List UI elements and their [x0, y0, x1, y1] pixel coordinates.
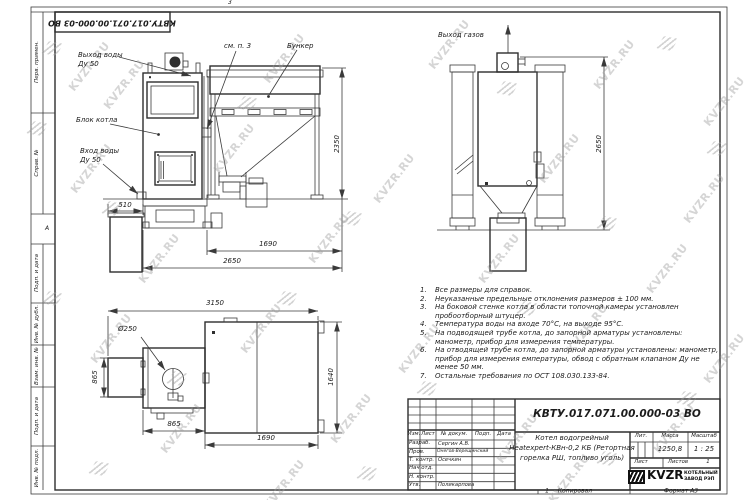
dimension-lines: [100, 57, 608, 449]
note-text: Неуказанные предельные отклонения размер…: [435, 295, 720, 304]
note-number: 3.: [420, 303, 435, 320]
note-text: Все размеры для справок.: [435, 286, 720, 295]
note-text: На боковой стенке котла в области топочн…: [435, 303, 720, 320]
title-designation: КВТУ.017.071.00.000-03 ВО: [533, 409, 701, 421]
note-item: 3.На боковой стенке котла в области топо…: [420, 303, 720, 320]
col-header-doc: № докум.: [441, 432, 468, 438]
note-number: 1.: [420, 286, 435, 295]
note-item: 4.Температура воды на входе 70°С, на вых…: [420, 320, 720, 329]
role-nachotd: Нач.отд.: [409, 466, 433, 472]
callout-gas-out: Выход газов: [438, 32, 484, 40]
sheets-label: Листов: [668, 460, 688, 466]
scale-value: 1 : 25: [694, 446, 714, 454]
dim-2350: 2350: [334, 135, 342, 153]
technical-notes: 1.Все размеры для справок. 2.Неуказанные…: [420, 286, 720, 381]
note-number: 5.: [420, 329, 435, 346]
company-line1: КОТЕЛЬНЫЙ: [684, 471, 718, 476]
callout-water-out-line1: Выход воды: [78, 52, 123, 60]
callout-bunker: Бункер: [287, 43, 314, 51]
kvzr-logo-icon: [628, 470, 645, 484]
zone-digit: 3: [228, 0, 232, 7]
zone-letter: А: [45, 226, 49, 233]
top-view: [108, 318, 324, 433]
note-number: 7.: [420, 372, 435, 381]
frame-label-inv-podl: Инв. № подл.: [34, 449, 40, 488]
note-text: Температура воды на входе 70°С, на выход…: [435, 320, 720, 329]
role-razrab: Разраб.: [409, 441, 430, 447]
col-header-data: Дата: [497, 432, 511, 438]
note-item: 5.На подводящей трубе котла, до запорной…: [420, 329, 720, 346]
footer-format: Формат А3: [664, 489, 698, 496]
dim-1690-top: 1690: [257, 435, 275, 443]
title-name-line3: горелка РШ, топливо уголь): [520, 455, 624, 463]
note-text: Остальные требования по ОСТ 108.030.133-…: [435, 372, 720, 381]
col-header-podp: Подп.: [475, 432, 491, 438]
drawing-sheet: КВТУ.017.071.00.000-03 ВО 3 А Перв. прим…: [0, 0, 750, 500]
dim-865-bottom: 865: [167, 421, 180, 429]
note-text: На отводящей трубе котла, до запорной ар…: [435, 346, 720, 372]
dim-2650-side: 2650: [596, 135, 604, 153]
note-item: 7.Остальные требования по ОСТ 108.030.13…: [420, 372, 720, 381]
dim-1690-front: 1690: [259, 241, 277, 249]
footer-copy: Копировал: [558, 489, 592, 496]
name-utv: Поликарпова: [438, 483, 474, 489]
footer-num: 1: [545, 489, 549, 496]
note-number: 6.: [420, 346, 435, 372]
role-utv: Утв.: [409, 483, 420, 489]
role-tkontr: Т. контр.: [409, 458, 434, 464]
name-tkontr: Осечкин: [438, 458, 461, 464]
sheet-label: Лист: [634, 460, 648, 466]
callout-water-in-line1: Вход воды: [80, 148, 119, 156]
dim-510: 510: [118, 202, 131, 210]
role-nkontr: Н. контр.: [409, 475, 435, 481]
company-line2: ЗАВОД РЭП: [684, 477, 715, 482]
frame-label-sprav-no: Справ. №: [34, 149, 40, 176]
frame-label-perv-primen: Перв. примен.: [34, 41, 40, 83]
scale-label: Масштаб: [691, 434, 717, 440]
callout-water-out-line2: Ду 50: [78, 61, 99, 69]
note-text: На подводящей трубе котла, до запорной а…: [435, 329, 720, 346]
dim-1640: 1640: [328, 368, 336, 386]
dim-d250: Ø250: [118, 326, 137, 334]
dim-3150: 3150: [206, 300, 224, 308]
note-item: 1.Все размеры для справок.: [420, 286, 720, 295]
side-view: [437, 25, 610, 271]
designation-top-rotated: КВТУ.017.071.00.000-03 ВО: [48, 18, 176, 27]
callout-water-in-line2: Ду 50: [80, 157, 101, 165]
name-razrab: Сергин А.В.: [438, 442, 470, 448]
note-item: 2.Неуказанные предельные отклонения разм…: [420, 295, 720, 304]
frame-label-vzam-inv: Взам. инв. №: [34, 347, 40, 385]
title-name-line2: Heatexpert-КВн-0,2 КБ (Ретортная: [509, 445, 634, 453]
sheets-value: 1: [706, 460, 709, 466]
role-prov: Пров.: [409, 450, 425, 456]
name-prov: Онегов-Верещинский: [437, 450, 488, 455]
note-number: 4.: [420, 320, 435, 329]
mass-label: Масса: [661, 434, 678, 440]
drawing-linework: [0, 0, 750, 500]
col-header-izm: Изм.: [408, 432, 421, 438]
dim-865-left: 865: [92, 370, 100, 383]
callout-see-note-3: см. п. 3: [224, 43, 251, 51]
dim-2650-front: 2650: [223, 258, 241, 266]
frame-label-podp-data-1: Подп. и дата: [34, 254, 40, 292]
mass-value: 1250,8: [658, 446, 683, 454]
note-number: 2.: [420, 295, 435, 304]
title-name-line1: Котел водогрейный: [535, 435, 609, 443]
lit-label: Лит.: [635, 434, 647, 440]
frame-label-inv-dubl: Инв. № дубл.: [34, 305, 40, 343]
col-header-list: Лист: [421, 432, 435, 438]
kvzr-logo-text: KVZR: [647, 469, 684, 481]
frame-label-podp-data-2: Подп. и дата: [34, 397, 40, 435]
callout-boiler-block: Блок котла: [76, 117, 117, 125]
note-item: 6.На отводящей трубе котла, до запорной …: [420, 346, 720, 372]
